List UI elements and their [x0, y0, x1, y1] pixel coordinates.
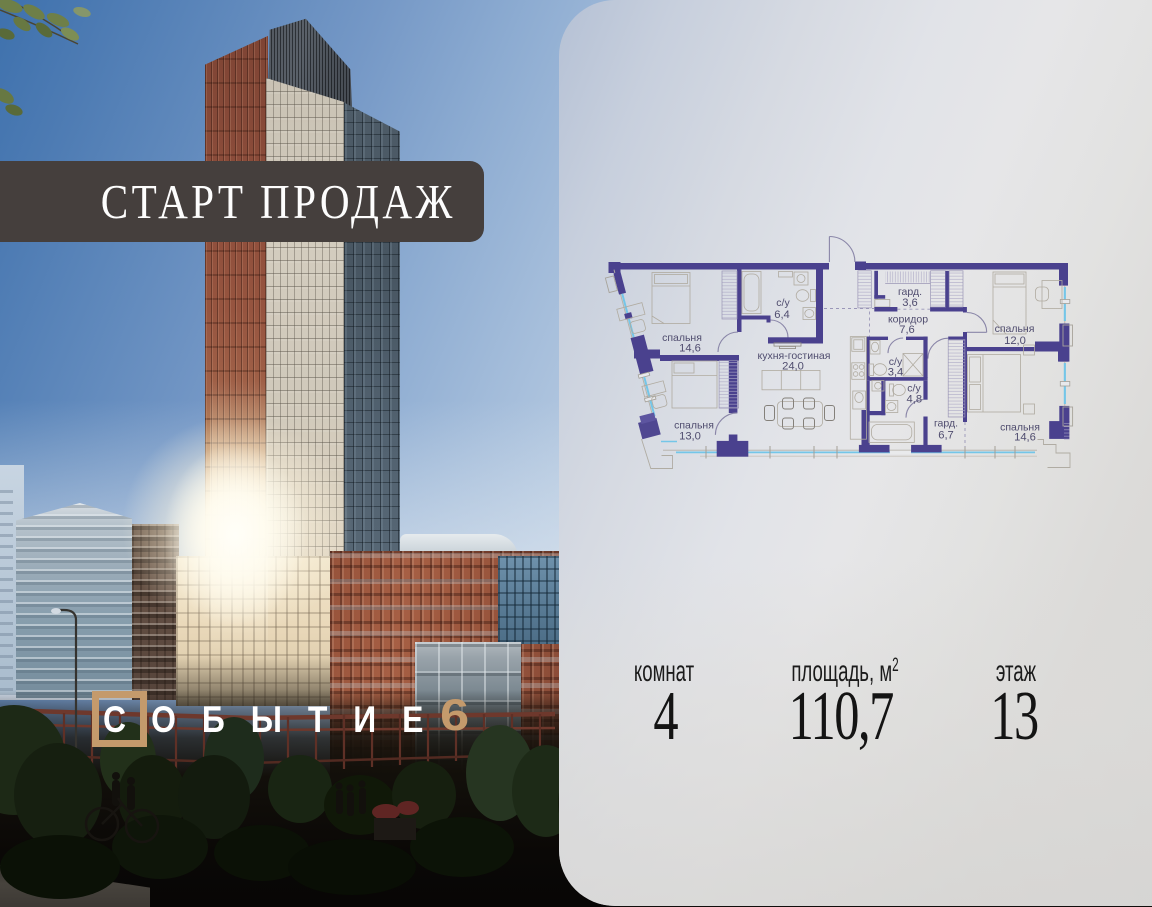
- svg-text:14,6: 14,6: [679, 343, 701, 355]
- svg-text:с/у: с/у: [776, 297, 790, 309]
- svg-text:с/у: с/у: [907, 382, 921, 394]
- svg-text:14,6: 14,6: [1014, 432, 1036, 444]
- svg-text:6,7: 6,7: [938, 429, 954, 441]
- svg-text:гард.: гард.: [934, 418, 958, 430]
- svg-text:4,8: 4,8: [907, 394, 923, 406]
- svg-text:6,4: 6,4: [774, 309, 790, 321]
- svg-text:спальня: спальня: [995, 323, 1035, 335]
- svg-text:7,6: 7,6: [899, 324, 915, 336]
- svg-text:3,4: 3,4: [888, 367, 904, 379]
- svg-text:13,0: 13,0: [679, 431, 701, 443]
- svg-text:12,0: 12,0: [1004, 335, 1026, 347]
- svg-text:3,6: 3,6: [902, 297, 918, 309]
- svg-text:24,0: 24,0: [782, 361, 804, 373]
